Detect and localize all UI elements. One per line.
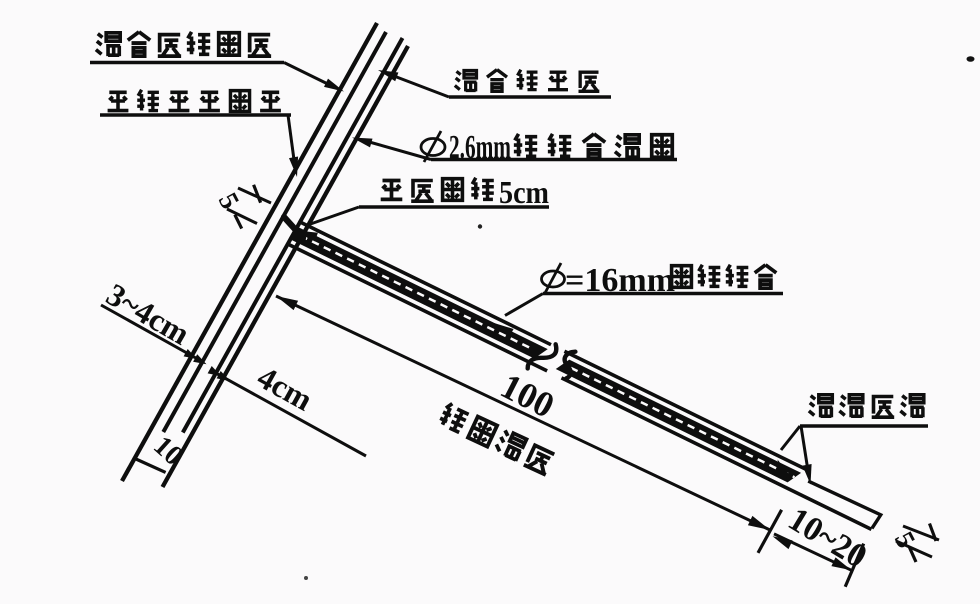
svg-text:5cm: 5cm xyxy=(499,174,549,210)
svg-text:2.6mm: 2.6mm xyxy=(449,129,511,166)
svg-text:=16mm: =16mm xyxy=(565,262,675,299)
